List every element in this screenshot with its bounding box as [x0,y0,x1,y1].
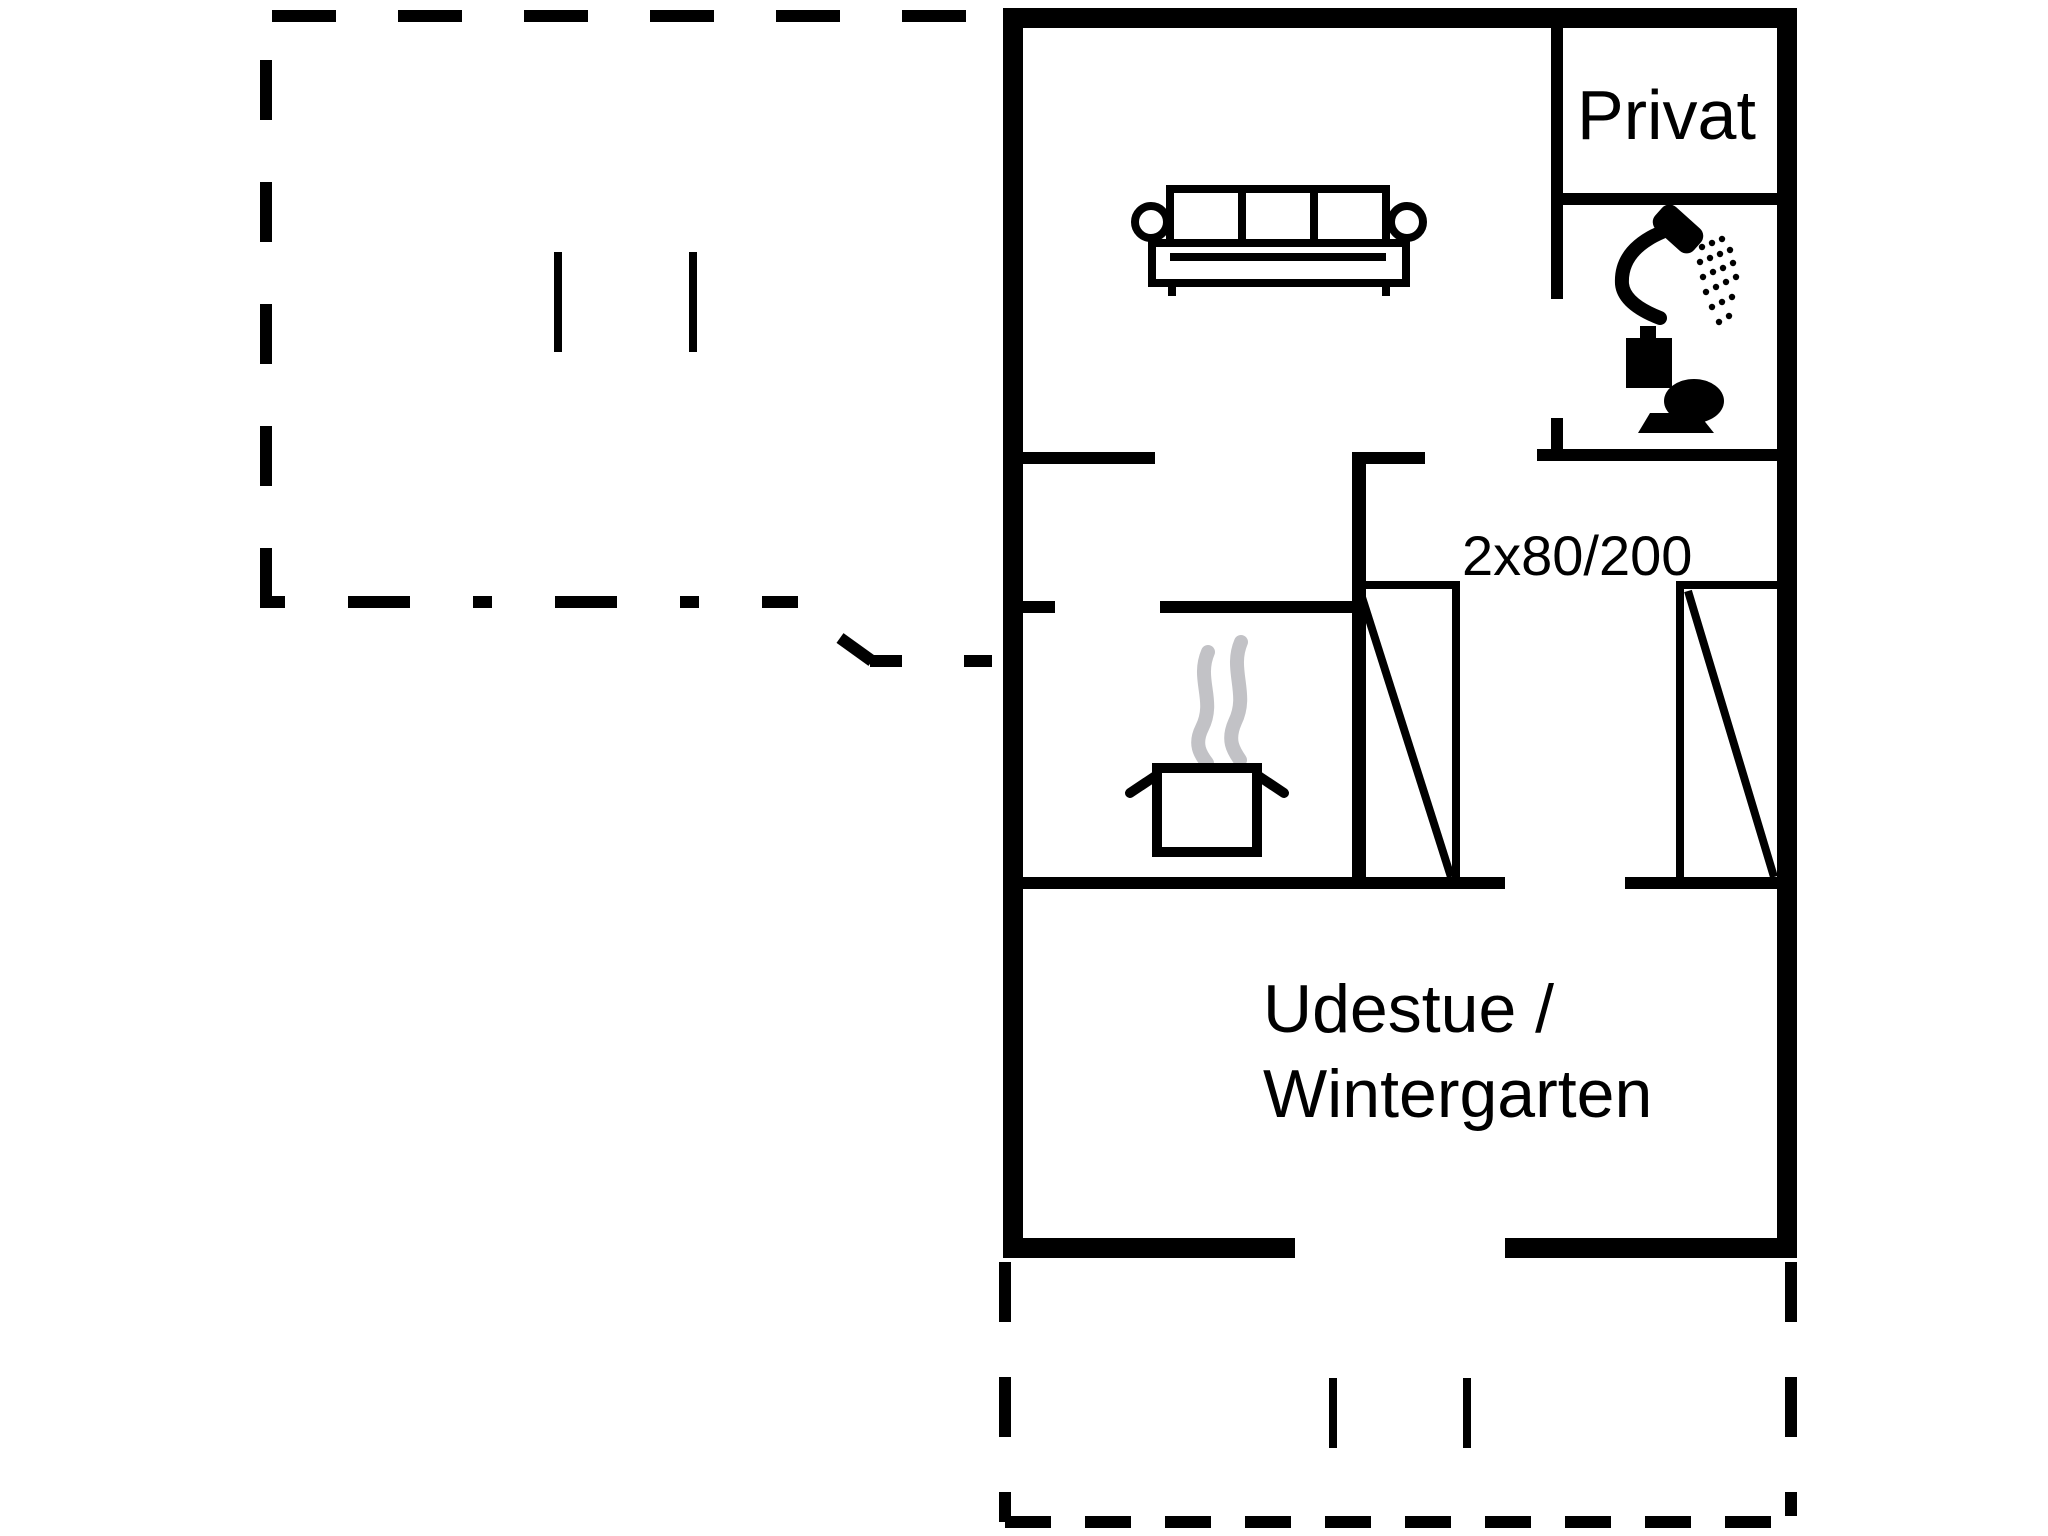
shower-spray-dots [1697,236,1739,325]
bed-size-label: 2x80/200 [1462,524,1692,587]
toilet-flush-button [1640,326,1656,338]
wall-wintergarden-top-left [1023,877,1505,889]
wall-kitchen-top-stub [1023,601,1055,613]
shower-icon [1622,200,1739,325]
outer-wall-bottom-right-segment [1505,1238,1797,1258]
shower-head [1649,200,1708,257]
steam-icon [1198,652,1208,763]
bottom-terrace-outline [1005,1262,1797,1522]
bed1-diagonal [1360,591,1451,877]
sofa-armrest-right [1391,206,1423,238]
wall-kitchen-bedroom-vertical [1352,452,1366,886]
sofa-back-cushions [1170,189,1386,243]
floor-plan-canvas: Privat 2x80/200 Udestue / Wintergarten [0,0,2048,1536]
toilet-tank [1626,338,1672,388]
steam-icon-2 [1231,642,1241,760]
bed-symbols [1352,585,1777,883]
pot-body [1157,768,1257,852]
winter-garden-label-line2: Wintergarten [1263,1056,1652,1132]
shower-hose [1622,232,1662,318]
wall-private-left-upper [1551,28,1563,299]
winter-garden-label-line1: Udestue / [1263,971,1554,1047]
outer-wall-right [1777,8,1797,1258]
left-terrace-outline [266,16,1003,661]
outer-wall-bottom-left-segment [1003,1238,1295,1258]
sofa-armrest-left [1135,206,1167,238]
sofa-icon [1135,189,1423,296]
wall-hall-left-segment [1023,452,1155,464]
outer-wall-left [1003,8,1023,1258]
terrace-dashed-jog [840,638,872,661]
sofa-seat [1152,243,1406,283]
bed2-diagonal [1688,591,1774,877]
cooking-pot-icon [1130,642,1284,852]
wall-wintergarden-top-right [1625,877,1797,889]
wall-private-bottom [1551,193,1777,205]
wall-kitchen-top-main [1160,601,1366,613]
private-room-label: Privat [1577,76,1756,154]
toilet-icon [1626,326,1724,433]
wall-bathroom-bottom [1537,449,1777,461]
outer-wall-top [1003,8,1797,28]
